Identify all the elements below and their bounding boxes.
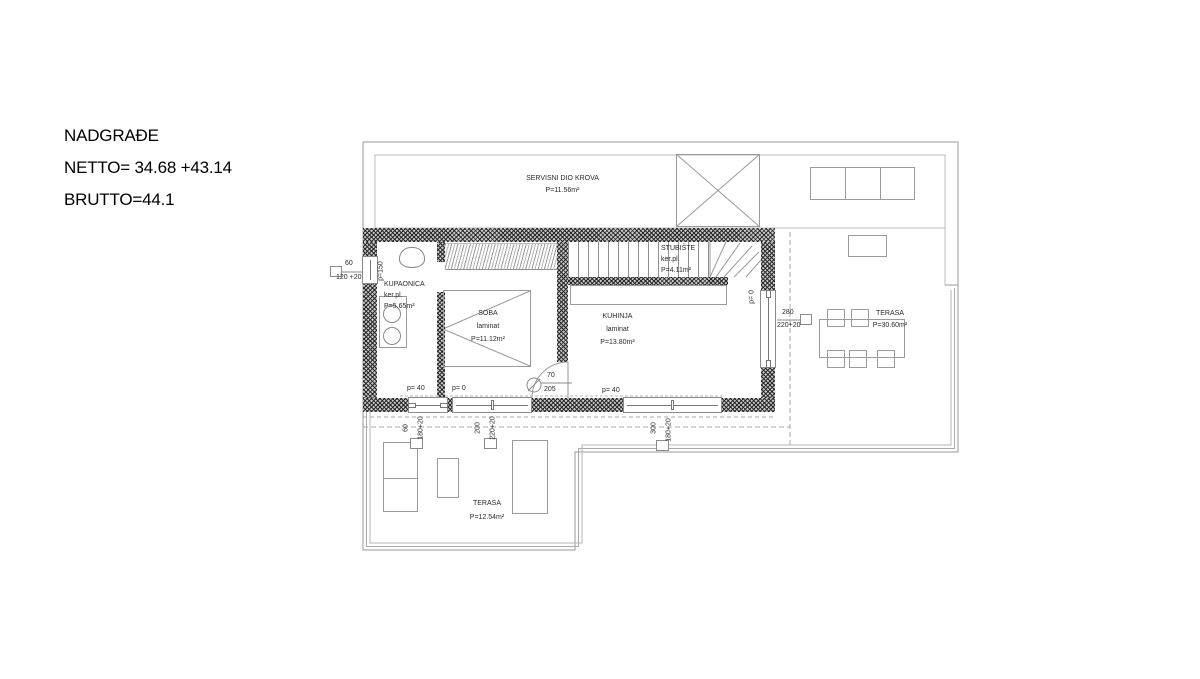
side-table (437, 458, 459, 498)
interior-door-height: 205 (544, 386, 556, 394)
soba-area: P=11.12m² (452, 333, 524, 346)
dim-marker-right (800, 314, 812, 325)
kuhinja-name: KUHINJA (580, 310, 655, 323)
window-1-width: 60 (403, 424, 410, 432)
right-door-parapet: p= 0 (749, 290, 756, 304)
room-label-kuhinja: KUHINJA laminat P=13.80m² (580, 310, 655, 349)
wall-bath-upper (437, 242, 445, 262)
kupaonica-name: KUPAONICA (384, 279, 425, 290)
wardrobe-hangers (445, 243, 557, 270)
chair (849, 350, 867, 368)
stubiste-name: STUBIŠTE (661, 243, 695, 254)
kitchen-counter (570, 285, 727, 305)
window-1-jamb-l (408, 403, 416, 408)
window-2-width: 200 (475, 422, 482, 434)
window-left (362, 256, 378, 284)
window-1-jamb-r (440, 403, 448, 408)
sink-2 (383, 327, 401, 345)
skylight-box (676, 154, 760, 227)
wall-right-upper (761, 242, 775, 290)
left-window-height: 120 +20 (336, 274, 362, 282)
window-2-mullion (491, 400, 494, 410)
kupaonica-area: P=5.65m² (384, 301, 425, 312)
window-3 (623, 397, 722, 413)
terasa-donja-name: TERASA (447, 497, 527, 511)
toilet (399, 247, 425, 268)
left-window-parapet: p=150 (378, 261, 385, 281)
wall-top (363, 228, 775, 242)
soba-finish: laminat (452, 320, 524, 333)
terasa-gornja-area: P=30.60m² (862, 320, 918, 332)
chair (877, 350, 895, 368)
right-door-width: 280 (782, 309, 794, 317)
floor-plan: NADGRAĐE NETTO= 34.68 +43.14 BRUTTO=44.1 (0, 0, 1200, 679)
room-label-soba: SOBA laminat P=11.12m² (452, 307, 524, 346)
stubiste-area: P=4.11m² (661, 265, 695, 276)
left-window-width: 60 (345, 260, 353, 268)
terasa-donja-area: P=12.54m² (447, 511, 527, 525)
servisni-name: SERVISNI DIO KROVA (500, 173, 625, 185)
wall-divider (557, 242, 568, 362)
window-left-glass (370, 260, 371, 280)
room-label-servisni: SERVISNI DIO KROVA P=11.56m² (500, 173, 625, 197)
coffee-table (848, 235, 887, 257)
chair (827, 309, 845, 327)
door-tag-slash (528, 379, 540, 391)
window-1-height: 180+20 (418, 416, 425, 440)
stair-stringer-wall (568, 277, 728, 285)
window-3-height: 180+20 (666, 418, 673, 442)
window-right-glass (768, 294, 769, 364)
lounge-sofa-divider-1 (845, 168, 846, 199)
right-door-height: 220+20 (777, 322, 801, 330)
window-2 (452, 397, 532, 413)
wall-bottom-pier-4 (722, 398, 775, 412)
sun-lounger-1 (383, 442, 418, 512)
stair-winder (710, 242, 761, 277)
interior-door-width: 70 (547, 372, 555, 380)
window-3-mullion (671, 400, 674, 410)
room-label-kupaonica: KUPAONICA ker.pl. P=5.65m² (384, 279, 425, 312)
wall-left-upper (363, 242, 377, 256)
kuhinja-finish: laminat (580, 323, 655, 336)
window-right-jamb-top (766, 290, 771, 298)
window-2-parapet: p= 0 (452, 385, 466, 393)
window-1-parapet: p= 40 (407, 385, 425, 393)
kupaonica-finish: ker.pl. (384, 290, 425, 301)
wall-bottom-pier-1 (363, 398, 408, 412)
kuhinja-area: P=13.80m² (580, 336, 655, 349)
window-1 (408, 397, 448, 413)
chair (827, 350, 845, 368)
terasa-gornja-name: TERASA (862, 308, 918, 320)
wall-right-lower (761, 368, 775, 398)
window-3-width: 300 (651, 422, 658, 434)
wall-left-lower (363, 284, 377, 398)
soba-name: SOBA (452, 307, 524, 320)
window-3-parapet: p= 40 (602, 387, 620, 395)
lounge-sofa-divider-2 (880, 168, 881, 199)
servisni-area: P=11.56m² (500, 185, 625, 197)
room-label-stubiste: STUBIŠTE ker.pl. P=4.11m² (661, 243, 695, 276)
room-label-terasa-donja: TERASA P=12.54m² (447, 497, 527, 525)
sun-lounger-1-divider (384, 478, 417, 479)
window-right-sliding (760, 290, 776, 368)
lounge-sofa (810, 167, 915, 200)
wall-bottom-pier-3 (532, 398, 623, 412)
stubiste-finish: ker.pl. (661, 254, 695, 265)
window-2-height: 220+20 (490, 416, 497, 440)
room-label-terasa-gornja: TERASA P=30.60m² (862, 308, 918, 332)
window-right-jamb-bottom (766, 360, 771, 368)
